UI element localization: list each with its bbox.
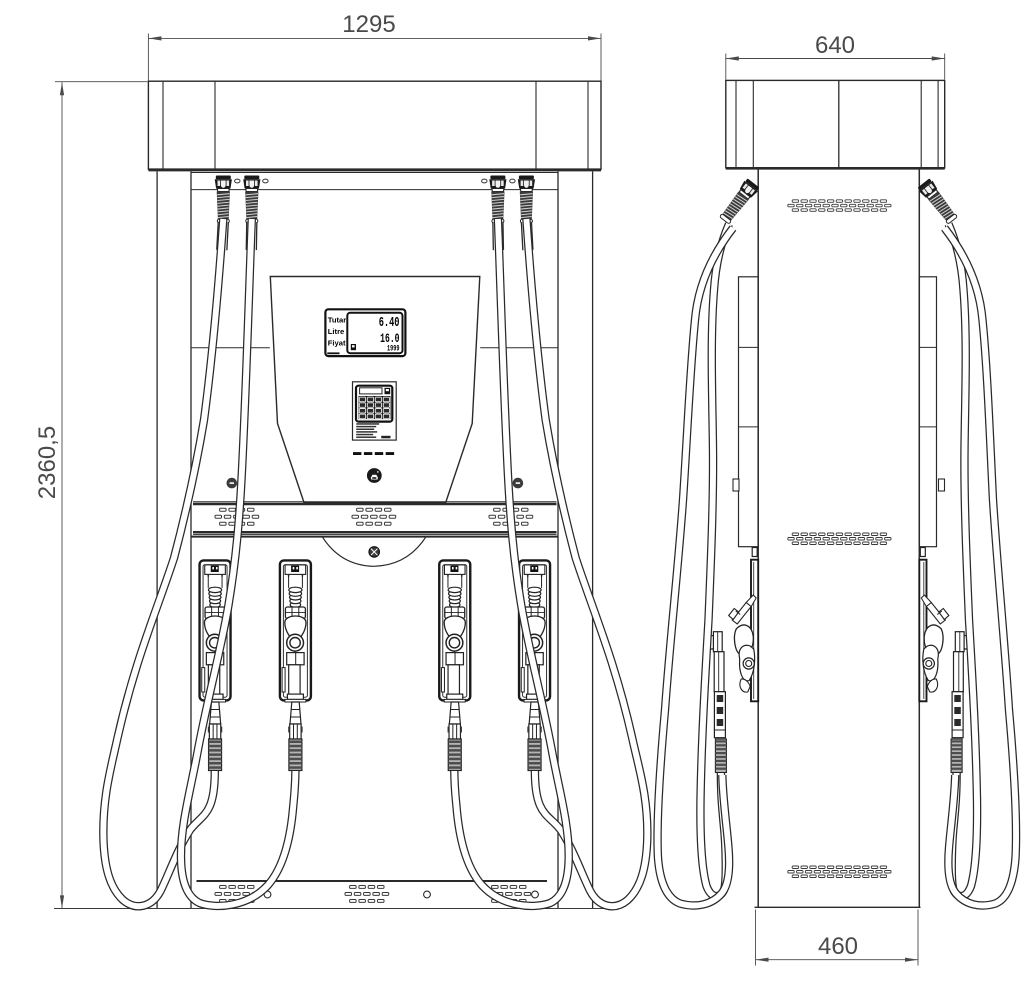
svg-text:6.40: 6.40	[379, 315, 400, 331]
svg-text:Litre: Litre	[328, 327, 344, 336]
svg-text:Fiyat: Fiyat	[328, 339, 346, 348]
svg-text:1999: 1999	[387, 345, 399, 354]
svg-text:2360,5: 2360,5	[34, 426, 61, 499]
svg-text:460: 460	[818, 933, 858, 960]
svg-text:1295: 1295	[342, 11, 395, 38]
svg-text:Tutar: Tutar	[328, 316, 346, 325]
svg-text:640: 640	[815, 32, 855, 59]
